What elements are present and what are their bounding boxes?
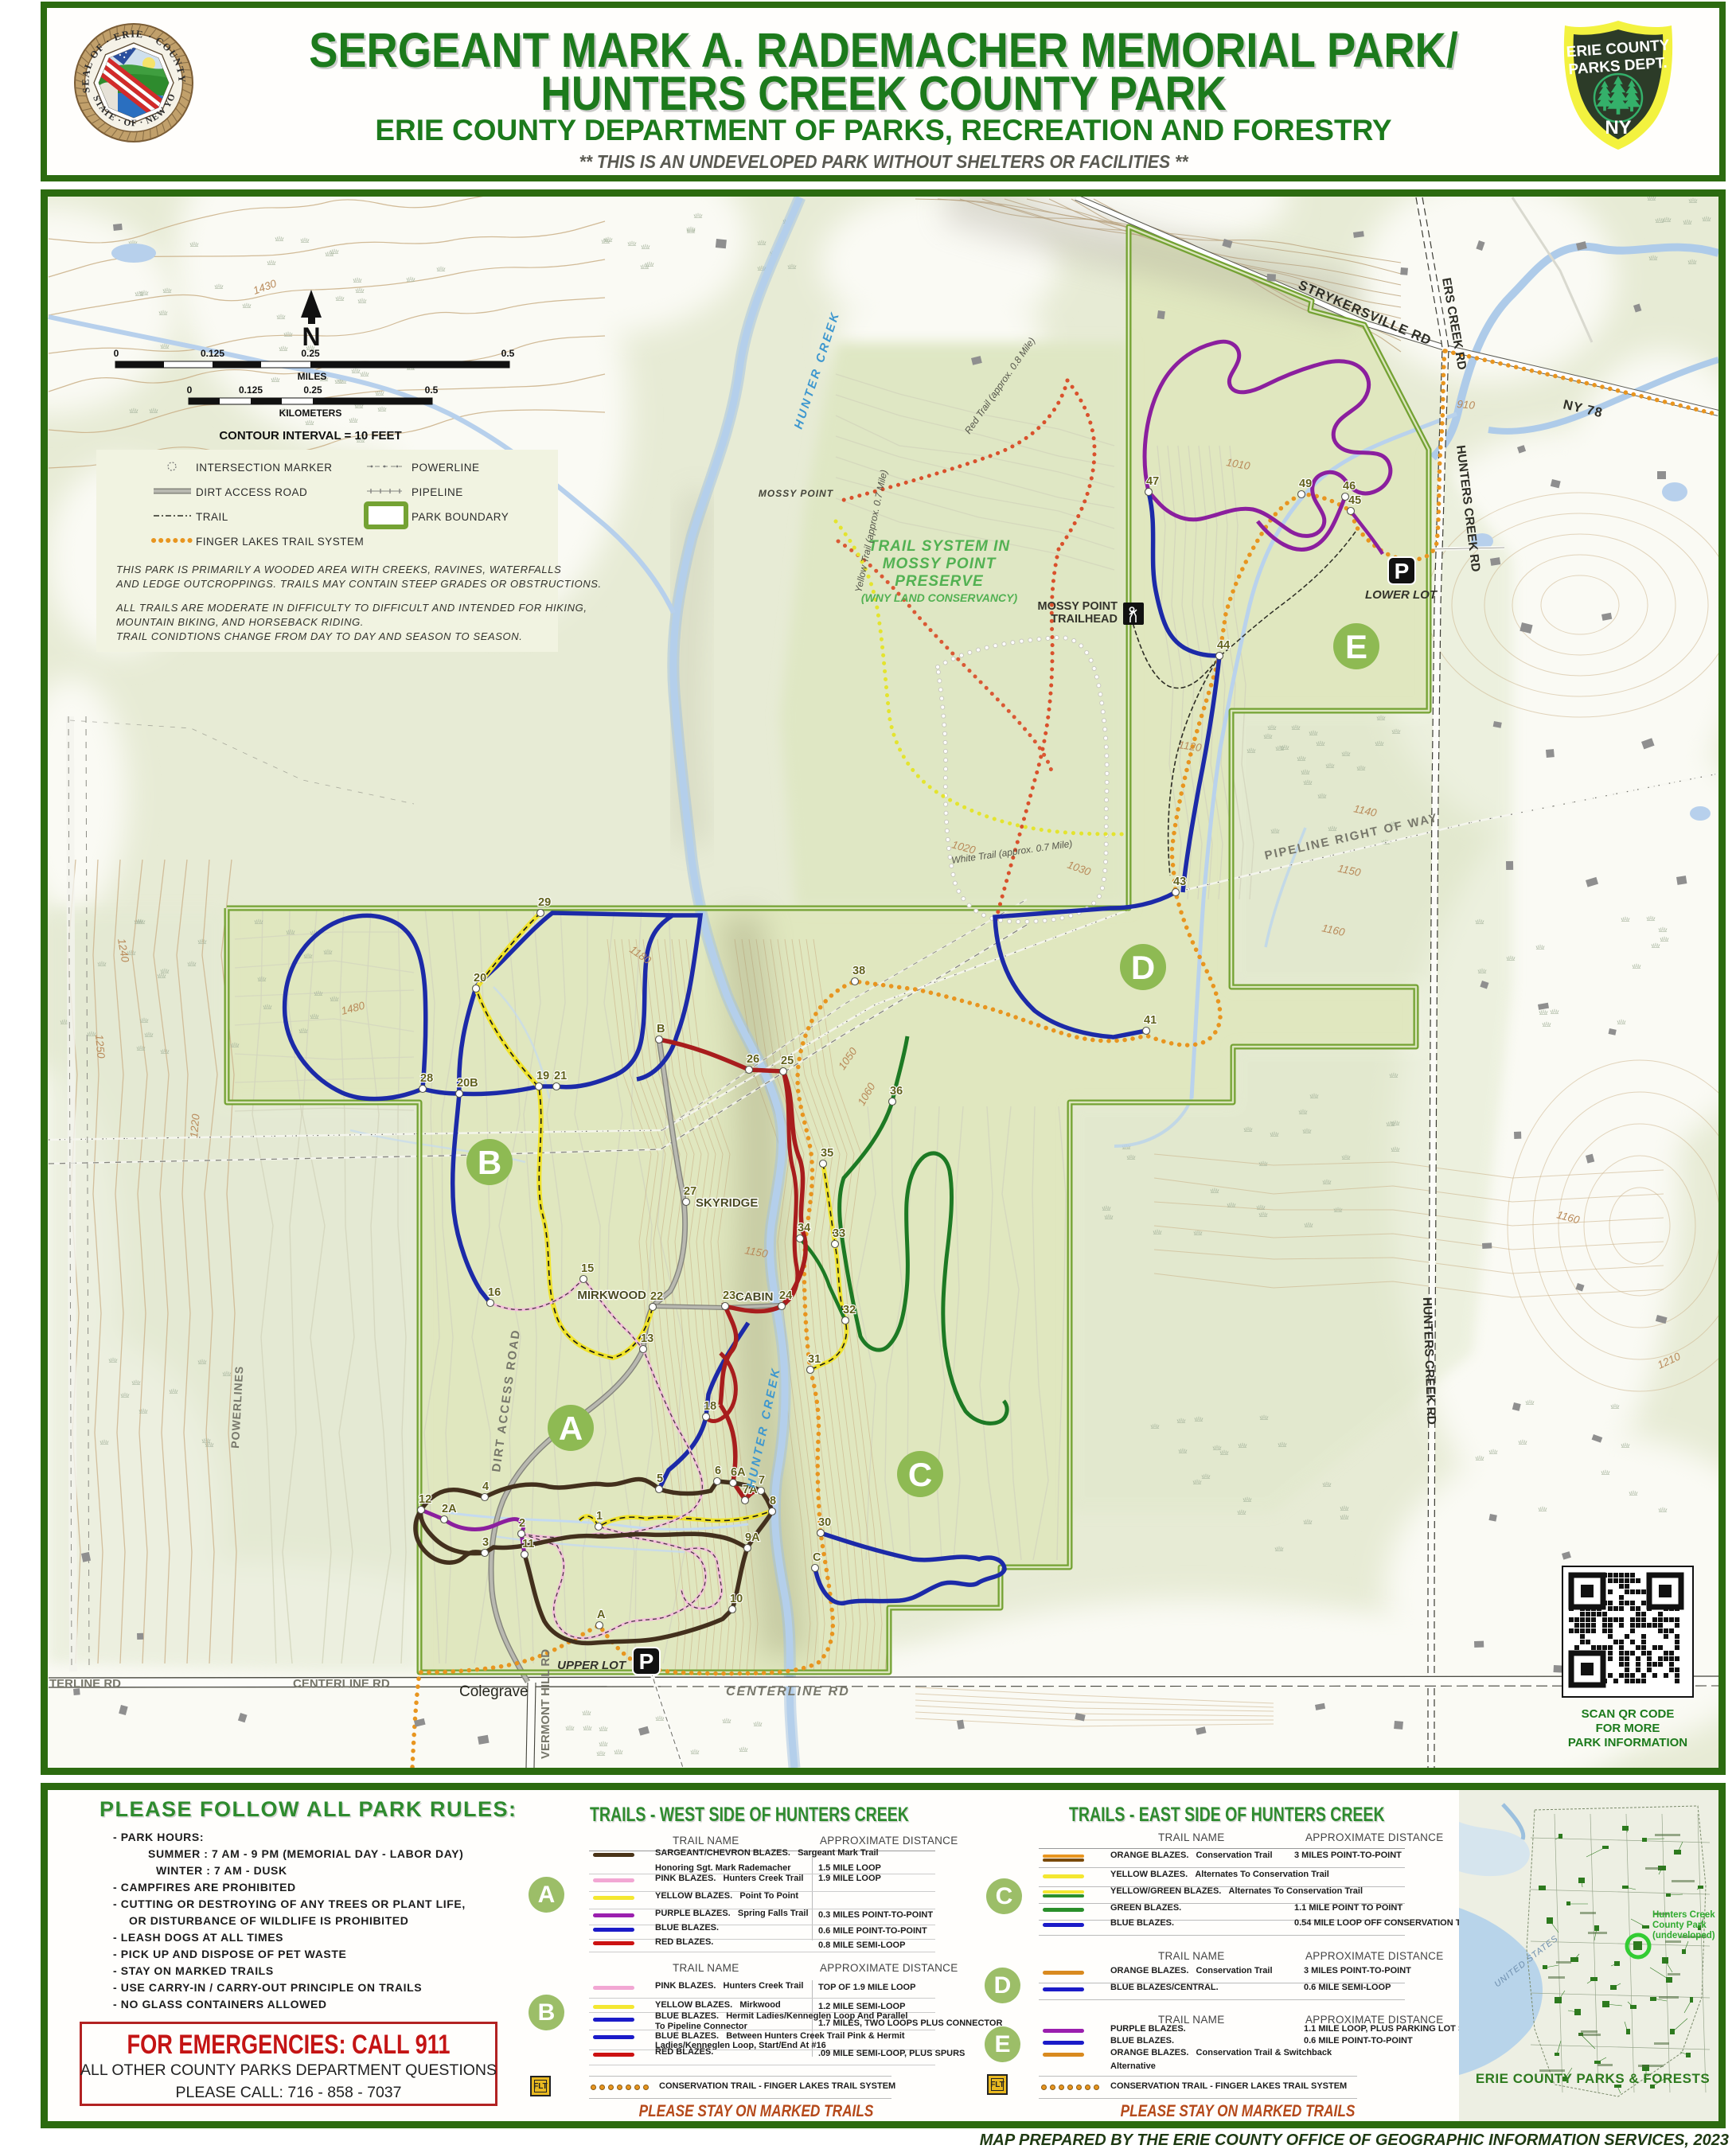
svg-text:47: 47 <box>1146 475 1159 488</box>
svg-text:CENTERLINE RD: CENTERLINE RD <box>726 1685 850 1699</box>
svg-text:CONTOUR INTERVAL = 10 FEET: CONTOUR INTERVAL = 10 FEET <box>219 429 401 443</box>
svg-text:31: 31 <box>808 1353 821 1366</box>
svg-text:22: 22 <box>650 1290 663 1303</box>
svg-text:49: 49 <box>1299 478 1312 490</box>
svg-text:11: 11 <box>522 1538 534 1550</box>
svg-text:8: 8 <box>770 1495 776 1507</box>
svg-text:13: 13 <box>641 1332 653 1345</box>
svg-text:ERIE COUNTY PARKS & FORESTS: ERIE COUNTY PARKS & FORESTS <box>1476 2071 1710 2086</box>
svg-text:0.5: 0.5 <box>425 384 439 396</box>
svg-text:POWERLINE: POWERLINE <box>412 462 480 474</box>
svg-text:KILOMETERS: KILOMETERS <box>279 408 342 419</box>
svg-text:10: 10 <box>730 1593 743 1605</box>
svg-text:4: 4 <box>482 1480 489 1493</box>
svg-text:P: P <box>639 1649 654 1674</box>
svg-text:19: 19 <box>536 1070 549 1082</box>
svg-text:E: E <box>1345 628 1367 665</box>
svg-text:CENTERLINE RD: CENTERLINE RD <box>293 1677 390 1691</box>
svg-text:N: N <box>302 322 320 351</box>
svg-text:34: 34 <box>798 1222 810 1234</box>
svg-text:27: 27 <box>684 1185 696 1198</box>
svg-text:Hunters Creek: Hunters Creek <box>1652 1910 1715 1920</box>
svg-text:0: 0 <box>114 348 119 359</box>
svg-text:FOR MORE: FOR MORE <box>1596 1722 1660 1735</box>
svg-text:MOSSY POINT: MOSSY POINT <box>759 488 834 499</box>
svg-text:2A: 2A <box>442 1503 457 1515</box>
svg-text:TERLINE RD: TERLINE RD <box>49 1677 121 1691</box>
svg-text:25: 25 <box>781 1055 794 1067</box>
svg-text:MILES: MILES <box>298 371 327 382</box>
svg-text:41: 41 <box>1144 1014 1157 1027</box>
svg-text:1220: 1220 <box>188 1114 202 1139</box>
svg-text:AND LEDGE OUTCROPPINGS. TRAILS: AND LEDGE OUTCROPPINGS. TRAILS MAY CONTA… <box>115 578 602 590</box>
svg-text:24: 24 <box>779 1289 792 1302</box>
svg-text:County Park: County Park <box>1652 1921 1707 1930</box>
svg-text:TRAIL SYSTEM IN: TRAIL SYSTEM IN <box>868 538 1011 555</box>
svg-text:26: 26 <box>747 1053 759 1066</box>
svg-text:C: C <box>813 1551 821 1564</box>
svg-text:DIRT ACCESS ROAD: DIRT ACCESS ROAD <box>196 486 307 498</box>
svg-text:21: 21 <box>554 1070 567 1082</box>
svg-text:PARK INFORMATION: PARK INFORMATION <box>1568 1736 1687 1749</box>
svg-text:12: 12 <box>419 1493 431 1506</box>
svg-text:PARK BOUNDARY: PARK BOUNDARY <box>412 511 509 523</box>
svg-text:0.25: 0.25 <box>301 348 320 359</box>
svg-text:1: 1 <box>596 1510 603 1523</box>
svg-text:Colegrave: Colegrave <box>459 1683 529 1700</box>
svg-text:TRAILHEAD: TRAILHEAD <box>1051 613 1118 626</box>
svg-text:1250: 1250 <box>93 1034 107 1059</box>
svg-text:A: A <box>559 1410 583 1447</box>
svg-text:0.125: 0.125 <box>239 384 263 396</box>
svg-text:(undeveloped): (undeveloped) <box>1652 1931 1715 1940</box>
svg-text:9A: 9A <box>745 1531 760 1544</box>
svg-text:5: 5 <box>657 1472 663 1485</box>
svg-text:TRAIL CONIDTIONS CHANGE FROM D: TRAIL CONIDTIONS CHANGE FROM DAY TO DAY … <box>116 630 522 642</box>
svg-text:SCAN QR CODE: SCAN QR CODE <box>1582 1707 1675 1721</box>
svg-text:(WNY LAND CONSERVANCY): (WNY LAND CONSERVANCY) <box>861 591 1018 604</box>
svg-text:35: 35 <box>821 1147 833 1160</box>
svg-text:15: 15 <box>581 1262 594 1275</box>
svg-text:LOWER LOT: LOWER LOT <box>1365 588 1438 602</box>
svg-text:MOSSY POINT: MOSSY POINT <box>1038 600 1118 613</box>
svg-text:B: B <box>657 1023 665 1035</box>
svg-text:6A: 6A <box>731 1466 746 1479</box>
svg-text:0.5: 0.5 <box>501 348 515 359</box>
svg-text:29: 29 <box>538 896 551 909</box>
svg-text:38: 38 <box>852 965 865 977</box>
svg-text:MOUNTAIN BIKING, AND HORSEBACK: MOUNTAIN BIKING, AND HORSEBACK RIDING. <box>116 616 364 628</box>
svg-text:32: 32 <box>843 1304 856 1316</box>
svg-text:20: 20 <box>474 972 486 985</box>
svg-text:ALL TRAILS ARE MODERATE IN DIF: ALL TRAILS ARE MODERATE IN DIFFICULTY TO… <box>115 602 587 614</box>
svg-text:C: C <box>908 1456 932 1493</box>
svg-text:A: A <box>597 1609 606 1621</box>
svg-text:6: 6 <box>715 1465 721 1477</box>
svg-text:910: 910 <box>1457 398 1476 411</box>
svg-text:0: 0 <box>187 384 193 396</box>
svg-text:P: P <box>1395 559 1410 583</box>
svg-text:3: 3 <box>482 1536 489 1549</box>
svg-text:0.125: 0.125 <box>201 348 224 359</box>
svg-text:UPPER LOT: UPPER LOT <box>557 1659 627 1672</box>
svg-text:20B: 20B <box>457 1077 478 1090</box>
svg-text:FINGER LAKES TRAIL SYSTEM: FINGER LAKES TRAIL SYSTEM <box>196 536 364 548</box>
svg-text:33: 33 <box>833 1227 845 1240</box>
svg-text:46: 46 <box>1343 480 1356 493</box>
svg-text:TRAIL: TRAIL <box>196 511 228 523</box>
svg-text:MIRKWOOD: MIRKWOOD <box>577 1289 646 1302</box>
svg-text:30: 30 <box>818 1516 831 1529</box>
svg-text:2: 2 <box>519 1517 525 1530</box>
svg-text:43: 43 <box>1173 876 1186 888</box>
svg-text:D: D <box>1131 949 1155 986</box>
svg-text:VERMONT HILL RD: VERMONT HILL RD <box>539 1649 552 1759</box>
svg-text:18: 18 <box>704 1400 716 1413</box>
svg-text:INTERSECTION MARKER: INTERSECTION MARKER <box>196 462 333 474</box>
svg-text:44: 44 <box>1217 639 1230 652</box>
svg-text:CABIN: CABIN <box>735 1290 774 1304</box>
svg-text:B: B <box>478 1144 501 1181</box>
svg-text:PIPELINE: PIPELINE <box>412 486 463 498</box>
svg-text:0.25: 0.25 <box>303 384 322 396</box>
svg-text:45: 45 <box>1348 494 1361 507</box>
svg-text:SKYRIDGE: SKYRIDGE <box>696 1196 758 1210</box>
svg-text:NY: NY <box>1605 117 1631 138</box>
svg-text:16: 16 <box>488 1286 501 1299</box>
svg-text:PRESERVE: PRESERVE <box>895 573 984 590</box>
svg-text:THIS PARK IS PRIMARILY A WOODE: THIS PARK IS PRIMARILY A WOODED AREA WIT… <box>116 564 561 575</box>
svg-text:28: 28 <box>420 1072 433 1085</box>
svg-text:MOSSY POINT: MOSSY POINT <box>883 556 997 572</box>
svg-text:23: 23 <box>723 1289 735 1302</box>
svg-text:36: 36 <box>890 1085 903 1098</box>
